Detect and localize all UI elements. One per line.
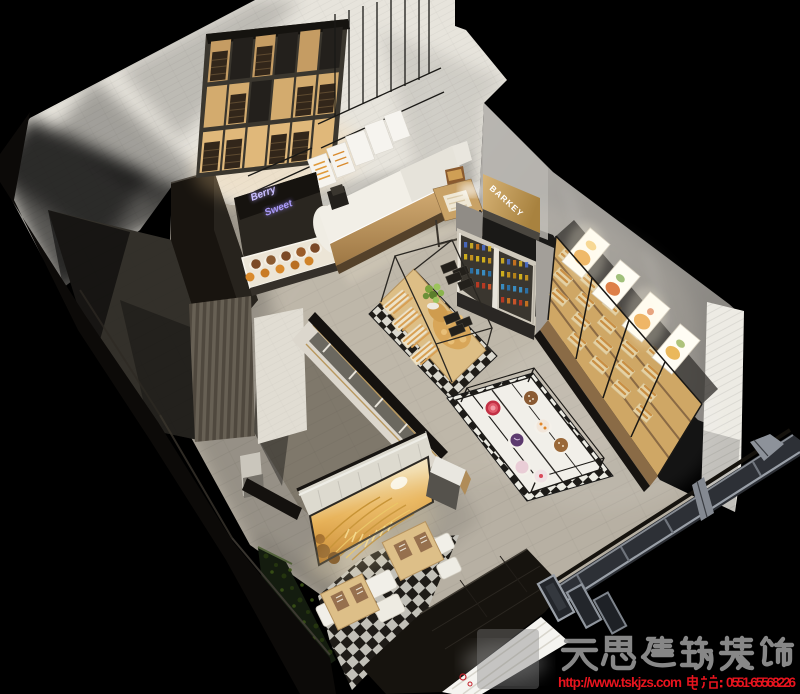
svg-text:0551-65568226: 0551-65568226 xyxy=(726,675,796,690)
svg-text:http://www.tskjzs.com: http://www.tskjzs.com xyxy=(558,675,682,690)
